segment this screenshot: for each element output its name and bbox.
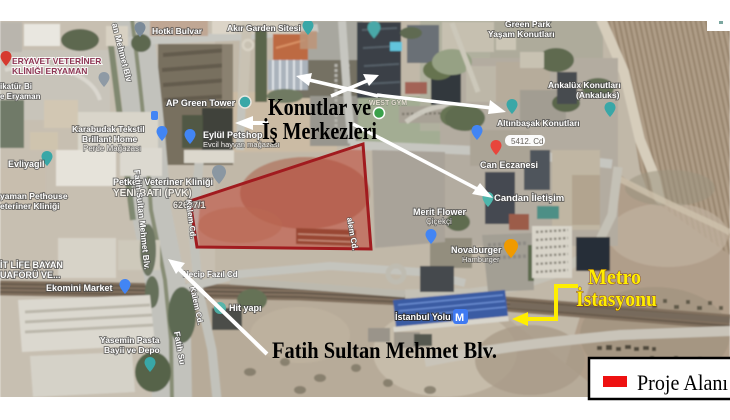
svg-text:Çiçekçi: Çiçekçi (426, 217, 452, 226)
svg-text:Bayii ve Depo: Bayii ve Depo (104, 345, 160, 355)
svg-text:UAFÖRÜ VE...: UAFÖRÜ VE... (0, 270, 61, 280)
svg-text:Perde Mağazası: Perde Mağazası (83, 144, 141, 153)
svg-text:Hamburger: Hamburger (462, 255, 500, 264)
svg-text:Karabudak Tekstil: Karabudak Tekstil (72, 124, 145, 134)
svg-text:ERYAVET VETERİNER: ERYAVET VETERİNER (12, 56, 101, 66)
svg-text:Can Eczanesi: Can Eczanesi (480, 160, 538, 170)
svg-text:KLİNİĞİ ERYAMAN: KLİNİĞİ ERYAMAN (12, 65, 87, 76)
svg-text:Ekomini Market: Ekomini Market (46, 283, 113, 293)
svg-text:e Eryaman: e Eryaman (0, 92, 41, 101)
svg-text:Akır Garden Sitesi: Akır Garden Sitesi (227, 23, 301, 33)
svg-text:Novaburger: Novaburger (451, 245, 502, 255)
svg-text:5412. Cd: 5412. Cd (511, 137, 543, 146)
svg-text:Evliyagil: Evliyagil (8, 159, 45, 169)
svg-text:Proje Alanı: Proje Alanı (637, 370, 728, 395)
svg-text:İstasyonu: İstasyonu (576, 286, 657, 311)
svg-text:ikatür Bi: ikatür Bi (0, 82, 32, 91)
svg-text:YENİ BATI (PVK): YENİ BATI (PVK) (113, 186, 192, 199)
svg-text:WEST GYM: WEST GYM (369, 100, 407, 107)
svg-text:eteriner Kliniği: eteriner Kliniği (0, 201, 60, 211)
svg-text:Hotki Bulvar: Hotki Bulvar (152, 26, 203, 36)
svg-text:AP Green Tower: AP Green Tower (166, 98, 236, 108)
svg-text:Yasemin Pasta: Yasemin Pasta (100, 335, 160, 345)
svg-text:Hit yapı: Hit yapı (229, 303, 262, 313)
svg-text:Merit Flower: Merit Flower (413, 207, 467, 217)
svg-text:Eylül Petshop: Eylül Petshop (203, 130, 263, 140)
svg-text:İstanbul Yolu: İstanbul Yolu (395, 312, 451, 322)
svg-text:yaman Pethouse: yaman Pethouse (0, 191, 68, 201)
svg-text:(Ankaluks): (Ankaluks) (576, 90, 620, 100)
svg-text:İş Merkezleri: İş Merkezleri (262, 119, 377, 145)
svg-text:Altınbaşak Konutları: Altınbaşak Konutları (497, 118, 580, 128)
svg-text:Konutlar ve: Konutlar ve (268, 95, 371, 121)
svg-text:Petkey Veteriner Kliniği: Petkey Veteriner Kliniği (113, 177, 213, 187)
svg-text:Fatih Sultan Mehmet Blv.: Fatih Sultan Mehmet Blv. (272, 338, 497, 363)
svg-text:Ankalüx Konutları: Ankalüx Konutları (548, 80, 621, 90)
svg-text:M: M (455, 312, 464, 324)
svg-text:Yaşam Konutları: Yaşam Konutları (488, 29, 555, 39)
svg-text:İT LİFE BAYAN: İT LİFE BAYAN (0, 260, 63, 270)
svg-text:Candan İletişim: Candan İletişim (494, 193, 564, 204)
svg-text:Brillant Home: Brillant Home (82, 134, 138, 144)
svg-text:Necip Fazıl Cd: Necip Fazıl Cd (183, 270, 238, 279)
